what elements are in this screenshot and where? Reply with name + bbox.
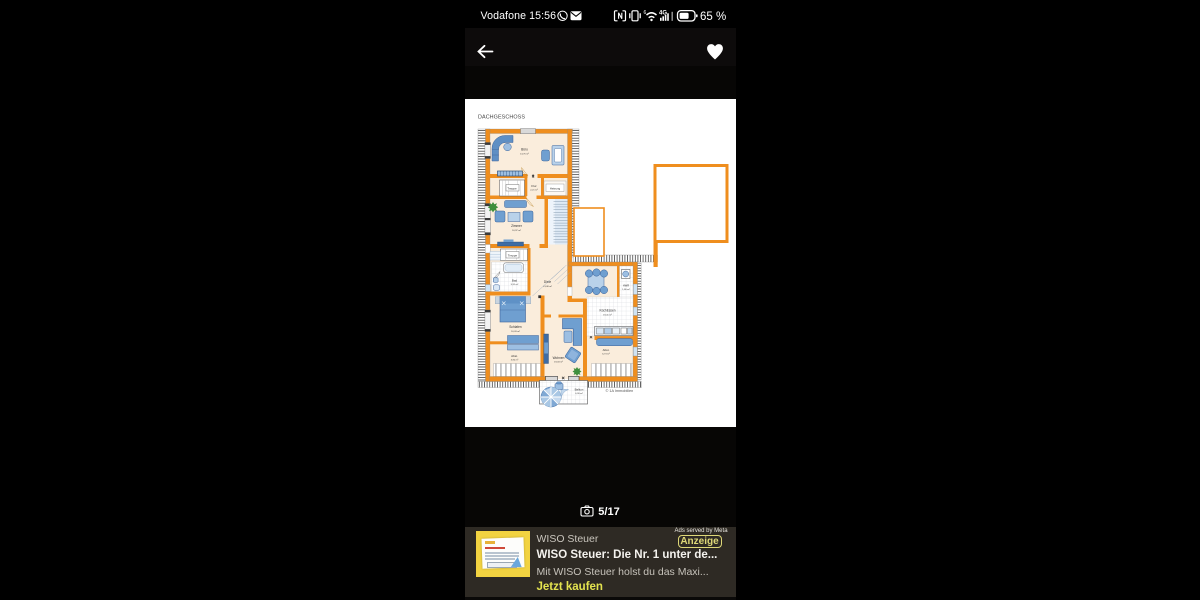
svg-text:19,41 m²: 19,41 m² bbox=[603, 314, 612, 317]
svg-text:1,86 m²: 1,86 m² bbox=[622, 288, 630, 291]
svg-text:16,97 m²: 16,97 m² bbox=[512, 229, 521, 232]
svg-text:Abst.: Abst. bbox=[602, 348, 609, 352]
svg-text:3,92 m²: 3,92 m² bbox=[510, 359, 518, 362]
svg-text:13,08 m²: 13,08 m² bbox=[543, 285, 552, 288]
svg-text:KüchEssen: KüchEssen bbox=[599, 309, 615, 313]
svg-text:Büro: Büro bbox=[521, 148, 528, 152]
svg-text:Treppe: Treppe bbox=[507, 187, 517, 191]
svg-text:16,03 m²: 16,03 m² bbox=[511, 330, 520, 333]
svg-text:13,75 m²: 13,75 m² bbox=[520, 153, 529, 156]
svg-text:Flur: Flur bbox=[531, 184, 536, 188]
svg-text:Heizung: Heizung bbox=[549, 186, 560, 190]
svg-text:6,36 m²: 6,36 m² bbox=[575, 392, 583, 395]
svg-text:HWR: HWR bbox=[622, 284, 628, 288]
svg-text:65 %: 65 % bbox=[700, 11, 726, 23]
svg-text:2,21 m²: 2,21 m² bbox=[530, 189, 538, 192]
svg-text:Zimmer: Zimmer bbox=[511, 224, 523, 228]
svg-text:19,03 m²: 19,03 m² bbox=[554, 361, 563, 364]
svg-text:Wohnen: Wohnen bbox=[552, 356, 564, 360]
svg-text:Schlafen: Schlafen bbox=[509, 325, 522, 329]
svg-text:© 1A Immobilien: © 1A Immobilien bbox=[605, 389, 633, 393]
svg-text:6: 6 bbox=[643, 10, 646, 16]
svg-text:5,91 m²: 5,91 m² bbox=[510, 283, 518, 286]
svg-text:DACHGESCHOSS: DACHGESCHOSS bbox=[478, 114, 525, 120]
svg-text:Treppe: Treppe bbox=[507, 254, 517, 258]
svg-text:Bad: Bad bbox=[511, 279, 517, 283]
svg-text:Balkon: Balkon bbox=[574, 388, 583, 392]
svg-text:6,73 m²: 6,73 m² bbox=[602, 353, 610, 356]
svg-text:Abst.: Abst. bbox=[511, 354, 518, 358]
